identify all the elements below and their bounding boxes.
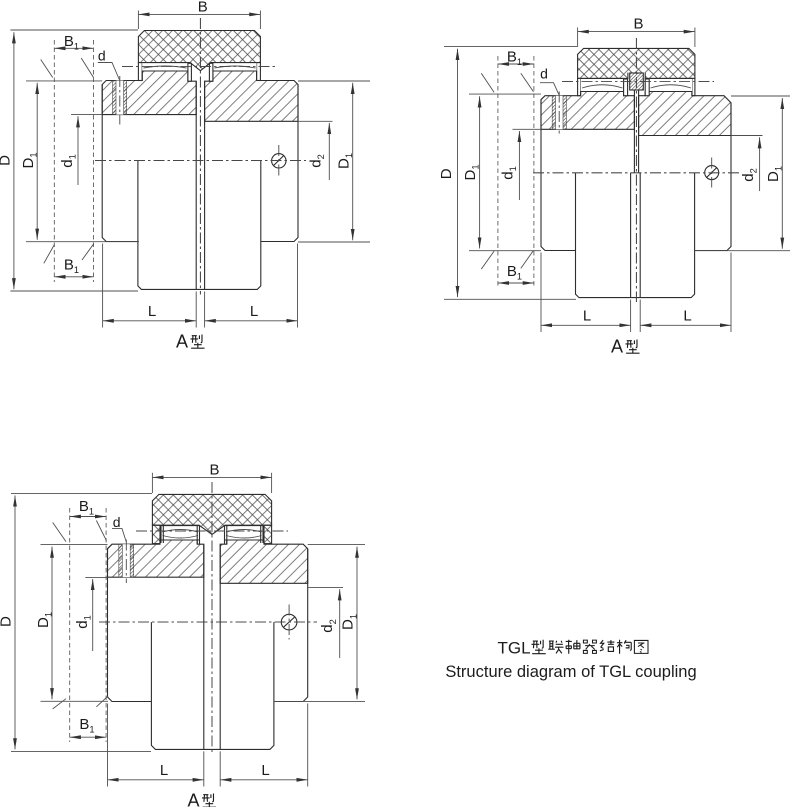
svg-text:Structure diagram of TGL coupl: Structure diagram of TGL coupling [445, 663, 696, 681]
svg-text:D: D [0, 155, 14, 166]
svg-text:D: D [438, 168, 455, 179]
svg-text:B: B [209, 461, 219, 478]
svg-text:D: D [0, 616, 15, 627]
svg-text:L: L [683, 308, 691, 325]
svg-text:TGL: TGL [498, 639, 531, 658]
svg-text:B: B [198, 0, 208, 16]
svg-text:A: A [176, 332, 188, 352]
svg-text:d: d [113, 514, 121, 530]
svg-text:L: L [261, 762, 269, 779]
svg-text:L: L [148, 303, 156, 320]
svg-text:A: A [188, 791, 200, 807]
svg-text:d: d [540, 66, 548, 82]
svg-text:L: L [160, 762, 168, 779]
svg-text:L: L [250, 303, 258, 320]
svg-text:B: B [633, 16, 643, 33]
svg-text:L: L [583, 308, 591, 325]
svg-text:d: d [98, 48, 106, 64]
svg-text:A: A [611, 337, 623, 357]
